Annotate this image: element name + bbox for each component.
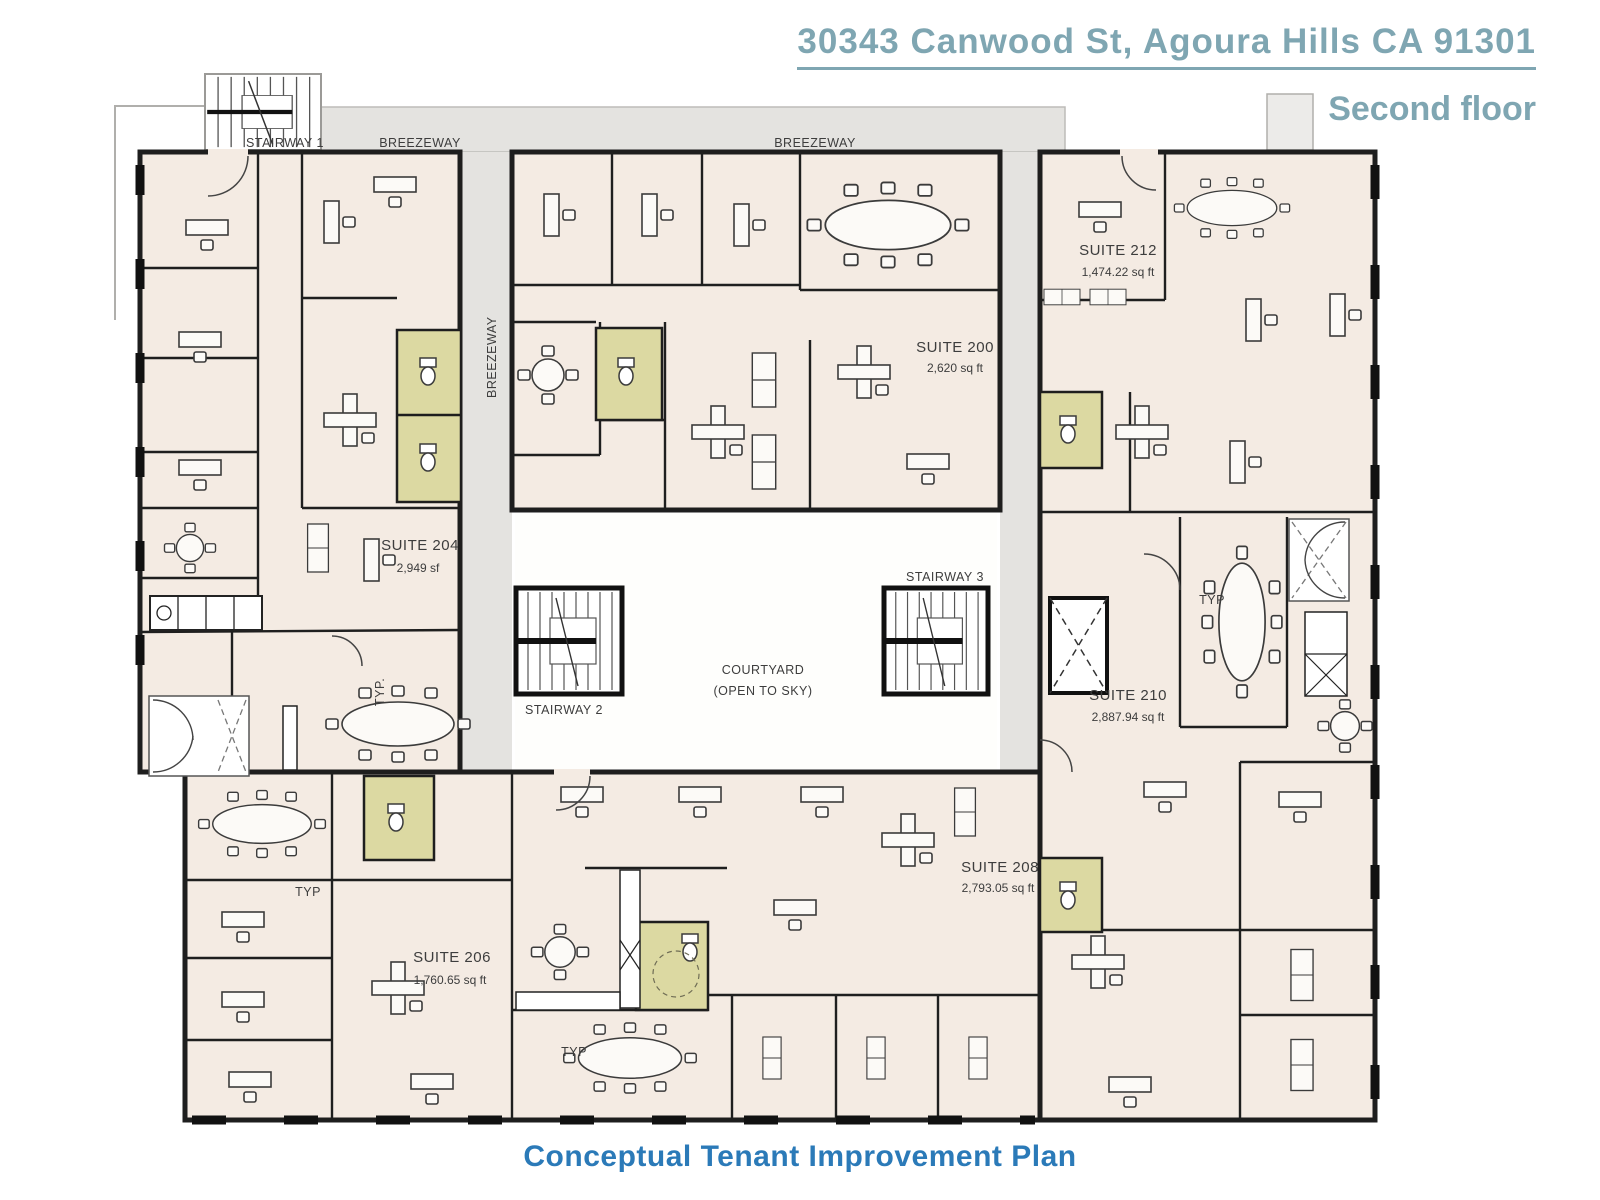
suite-208-area: 2,793.05 sq ft xyxy=(962,881,1035,895)
entry-vestibule-west xyxy=(149,696,249,776)
suite-210-label: SUITE 210 xyxy=(1089,687,1167,704)
suite-204-area: 2,949 sf xyxy=(397,561,440,575)
cabinet xyxy=(1044,289,1080,305)
plan-caption: Conceptual Tenant Improvement Plan xyxy=(0,1140,1600,1174)
suite-212-area: 1,474.22 sq ft xyxy=(1082,265,1155,279)
suite-208-label: SUITE 208 xyxy=(961,859,1039,876)
elevator xyxy=(1050,598,1107,693)
suite-206-area: 1,760.65 sq ft xyxy=(414,973,487,987)
typ-label-west: TYP. xyxy=(373,678,387,706)
entry-vestibule-east xyxy=(1289,519,1349,601)
floor-subtitle: Second floor xyxy=(1328,90,1536,129)
breezeway-top-left-label: BREEZEWAY xyxy=(379,136,461,150)
floor-plan-page: 30343 Canwood St, Agoura Hills CA 91301 … xyxy=(0,0,1600,1200)
cabinet xyxy=(1291,1040,1313,1091)
suite-200-area: 2,620 sq ft xyxy=(927,361,984,375)
suite-212-label: SUITE 212 xyxy=(1079,242,1157,259)
floor-plan-drawing: STAIRWAY 1 BREEZEWAY BREEZEWAY BREEZEWAY… xyxy=(0,0,1600,1200)
cabinet xyxy=(752,435,775,489)
courtyard-label-line1: COURTYARD xyxy=(722,663,805,677)
suite-206-label: SUITE 206 xyxy=(413,949,491,966)
typ-label-east: TYP xyxy=(1199,593,1225,607)
cabinet xyxy=(867,1037,885,1079)
suite-200-label: SUITE 200 xyxy=(916,339,994,356)
courtyard-label-line2: (OPEN TO SKY) xyxy=(713,684,812,698)
cabinet xyxy=(308,524,329,572)
stairway-3-label: STAIRWAY 3 xyxy=(906,570,984,584)
stairway-1-label: STAIRWAY 1 xyxy=(246,136,324,150)
cabinet xyxy=(955,788,976,836)
cabinet xyxy=(752,353,775,407)
cabinet xyxy=(1291,950,1313,1001)
suite-210-area: 2,887.94 sq ft xyxy=(1092,710,1165,724)
page-title: 30343 Canwood St, Agoura Hills CA 91301 xyxy=(797,22,1536,70)
suite-204-label: SUITE 204 xyxy=(381,537,459,554)
cabinet xyxy=(969,1037,987,1079)
cabinet xyxy=(763,1037,781,1079)
stairway-2-label: STAIRWAY 2 xyxy=(525,703,603,717)
typ-label-south-center: TYP xyxy=(561,1045,587,1059)
cabinet xyxy=(1090,289,1126,305)
typ-label-south-west: TYP xyxy=(295,885,321,899)
breezeway-top-right-label: BREEZEWAY xyxy=(774,136,856,150)
breezeway-vertical-label: BREEZEWAY xyxy=(485,316,499,398)
